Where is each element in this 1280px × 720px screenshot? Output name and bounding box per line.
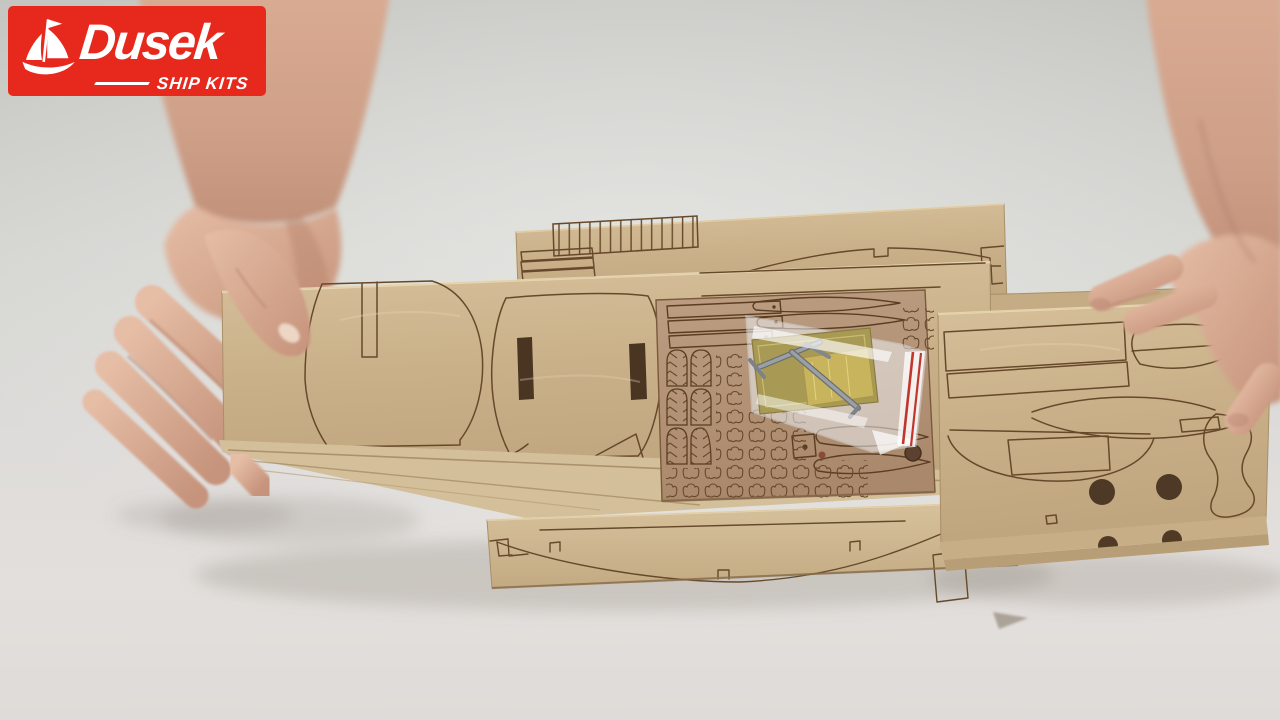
cut-hole (1089, 479, 1115, 505)
scene (0, 0, 1280, 720)
logo-row: Dusek (8, 15, 266, 75)
logo-tagline-row: SHIP KITS (8, 75, 266, 92)
brand-tagline: SHIP KITS (156, 75, 249, 92)
logo-rule (94, 82, 150, 85)
brand-name: Dusek (77, 17, 222, 67)
brand-logo: Dusek SHIP KITS (8, 6, 266, 96)
left-fingertip (238, 462, 262, 488)
sailboat-icon (16, 14, 82, 76)
cut-slot (517, 337, 534, 400)
cut-hole (1156, 474, 1182, 500)
video-frame: Dusek SHIP KITS (0, 0, 1280, 720)
cut-slot (629, 343, 647, 400)
